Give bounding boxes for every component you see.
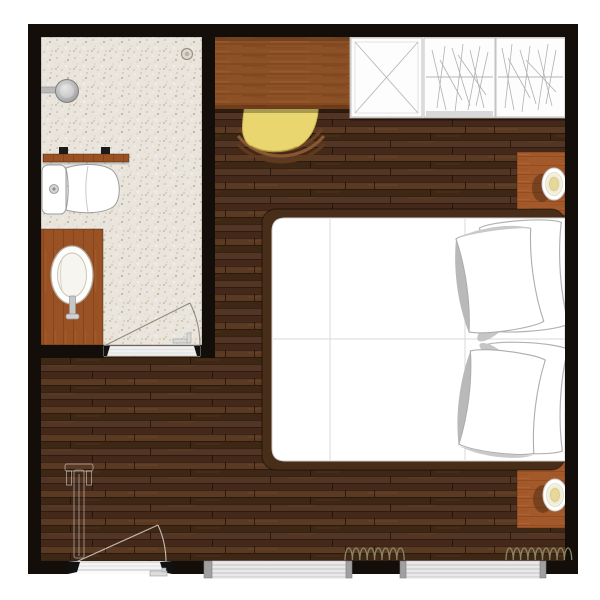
wall-bathroom-bottom-left bbox=[28, 345, 104, 358]
window-2 bbox=[406, 561, 540, 578]
wardrobe-rail-unit-icon bbox=[424, 38, 495, 117]
floor-plan bbox=[0, 0, 600, 600]
vanity bbox=[41, 229, 103, 345]
pillow-set bbox=[452, 340, 567, 461]
wardrobe bbox=[350, 37, 565, 121]
wardrobe-shelf-unit-icon bbox=[351, 38, 422, 117]
wall-bathroom-partition bbox=[202, 24, 215, 358]
wall-top bbox=[28, 24, 578, 37]
entry-door bbox=[68, 561, 172, 576]
nightstand-top bbox=[517, 152, 567, 215]
wall-bathroom-bottom-right bbox=[200, 345, 215, 358]
bathroom bbox=[41, 37, 202, 345]
bed bbox=[262, 209, 569, 470]
wall-left bbox=[28, 24, 41, 574]
pillow-set bbox=[450, 218, 569, 344]
window-1 bbox=[212, 561, 346, 578]
bath-door bbox=[104, 346, 200, 356]
nightstand-bottom bbox=[517, 462, 567, 528]
wall-right bbox=[565, 24, 578, 574]
desk bbox=[215, 37, 351, 113]
floor-drain-icon bbox=[182, 49, 193, 60]
lamp-icon bbox=[543, 479, 567, 511]
wardrobe-rail-unit-icon bbox=[496, 38, 565, 117]
floor-plan-canvas bbox=[0, 0, 600, 600]
toilet-icon bbox=[42, 164, 119, 214]
